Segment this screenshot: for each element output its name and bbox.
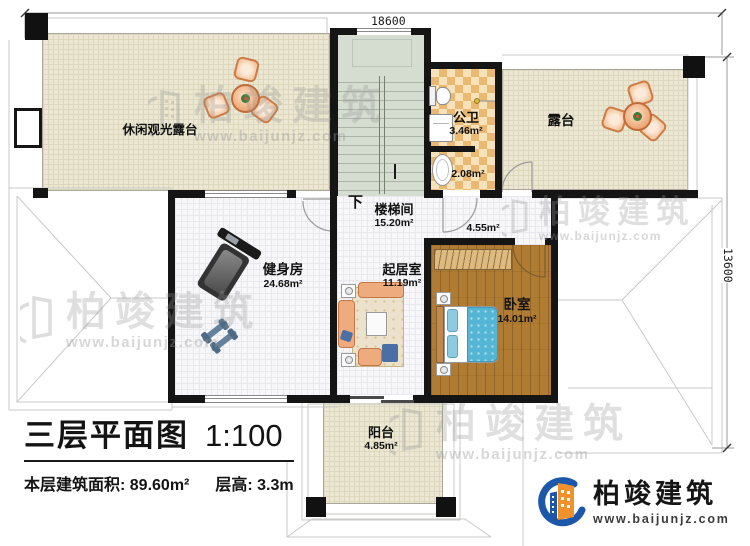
sliding-door-panel: [381, 400, 414, 403]
room-area: 3.46m²: [449, 125, 482, 138]
room-name: 楼梯间: [374, 203, 413, 217]
window: [205, 190, 287, 198]
door-handle: [474, 98, 480, 104]
plan-title-line: 三层平面图 1:100: [24, 410, 294, 462]
room-name: 卧室: [497, 298, 536, 313]
wall-segment: [330, 395, 350, 403]
stair-landing-outline: [352, 39, 412, 67]
patio-table: [231, 84, 260, 113]
column: [436, 497, 456, 517]
dimension-right: 13600: [718, 248, 738, 283]
plant-icon: [241, 94, 250, 103]
room-area: 15.20m²: [374, 217, 413, 230]
wall-segment: [287, 395, 330, 403]
lamp-icon: [440, 366, 448, 374]
column: [683, 56, 705, 78]
bedroom-label: 卧室 14.01m²: [497, 298, 536, 325]
room-area: 14.01m²: [497, 313, 536, 326]
brand-name: 柏竣建筑: [593, 480, 730, 510]
pillow: [447, 335, 458, 358]
toilet-bowl: [436, 87, 451, 105]
brand-logo-icon: [538, 476, 586, 530]
wall-segment: [495, 69, 502, 198]
armchair: [382, 344, 398, 362]
room-area: 11.19m²: [382, 277, 421, 290]
room-name: 阳台: [364, 426, 397, 440]
wall-segment: [175, 190, 205, 198]
wall-segment: [424, 238, 515, 245]
window: [357, 28, 411, 35]
stairs-down-label: 下: [348, 191, 363, 212]
wall-segment: [551, 238, 558, 403]
lamp-icon: [440, 295, 448, 303]
room-name: 公卫: [449, 111, 482, 125]
wall-segment: [330, 28, 338, 196]
room-area: 4.85m²: [364, 440, 397, 453]
headboard: [436, 306, 444, 363]
brand-logo: 柏竣建筑 www.baijunjz.com: [538, 476, 730, 530]
end-table: [341, 284, 356, 298]
room-name: 起居室: [382, 263, 421, 277]
room-name: 露台: [548, 114, 575, 129]
column: [25, 13, 48, 40]
window: [205, 395, 287, 403]
wall-segment: [431, 146, 475, 152]
wall-segment: [413, 395, 558, 403]
wall-segment: [33, 188, 48, 198]
room-area: 4.55m²: [466, 222, 499, 235]
brand-url: www.baijunjz.com: [593, 512, 730, 526]
title-block: 三层平面图 1:100 本层建筑面积: 89.60m² 层高: 3.3m: [24, 410, 294, 495]
nightstand: [436, 363, 451, 376]
dimension-top: 18600: [368, 14, 409, 28]
public-bath-label: 公卫 3.46m²: [449, 111, 482, 138]
end-table: [341, 353, 356, 367]
pillow: [447, 309, 458, 332]
coffee-table: [366, 312, 387, 336]
column: [306, 497, 326, 517]
plan-height-info: 层高: 3.3m: [215, 471, 293, 495]
stairwell-label: 楼梯间 15.20m²: [374, 203, 413, 230]
wall-segment: [168, 395, 205, 403]
wall-segment: [424, 190, 443, 198]
patio-chair: [233, 56, 261, 84]
plan-scale: 1:100: [205, 418, 283, 454]
lamp-icon: [345, 356, 353, 364]
living-room-label: 起居室 11.19m²: [382, 263, 421, 290]
wall-segment: [424, 62, 502, 69]
nightstand: [436, 292, 451, 305]
patio-table: [623, 102, 652, 131]
room-name: 休闲观光露台: [122, 124, 197, 138]
sofa-set: [336, 280, 414, 372]
sink: [432, 154, 453, 186]
patio-chair: [202, 91, 232, 121]
stair-railing: [379, 76, 385, 194]
gym-label: 健身房 24.68m²: [263, 263, 304, 290]
dumbbells: [200, 318, 240, 358]
mattress: [467, 307, 498, 362]
bed-group: [436, 292, 498, 378]
toilet: [429, 84, 453, 108]
plan-area-info: 本层建筑面积: 89.60m²: [24, 471, 189, 495]
wall-segment: [424, 245, 431, 403]
sliding-door-panel: [350, 396, 384, 399]
lamp-icon: [345, 287, 353, 295]
patio-table-set: [603, 82, 671, 144]
plan-title: 三层平面图: [24, 410, 189, 455]
wall-segment: [480, 190, 502, 198]
bath-lobby-label: 2.08m²: [451, 168, 484, 181]
sofa-seat: [358, 348, 382, 366]
wall-segment: [168, 190, 175, 403]
wall-segment: [287, 190, 296, 198]
patio-table-set: [205, 58, 285, 134]
plant-icon: [633, 112, 642, 121]
window: [14, 108, 42, 148]
balcony-label: 阳台 4.85m²: [364, 426, 397, 453]
toilet-tank: [429, 86, 436, 106]
terrace-label: 露台: [548, 114, 575, 129]
leisure-terrace-label: 休闲观光露台: [122, 124, 197, 138]
floor-plan-canvas: 柏竣建筑 www.baijunjz.com 柏竣建筑 www.baijunjz.…: [0, 0, 750, 546]
hall-area-label: 4.55m²: [466, 222, 499, 235]
stair-direction-arrow: [394, 164, 396, 179]
room-name: 健身房: [263, 263, 304, 278]
room-area: 24.68m²: [263, 278, 304, 291]
room-area: 2.08m²: [451, 168, 484, 181]
wardrobe: [434, 249, 512, 270]
